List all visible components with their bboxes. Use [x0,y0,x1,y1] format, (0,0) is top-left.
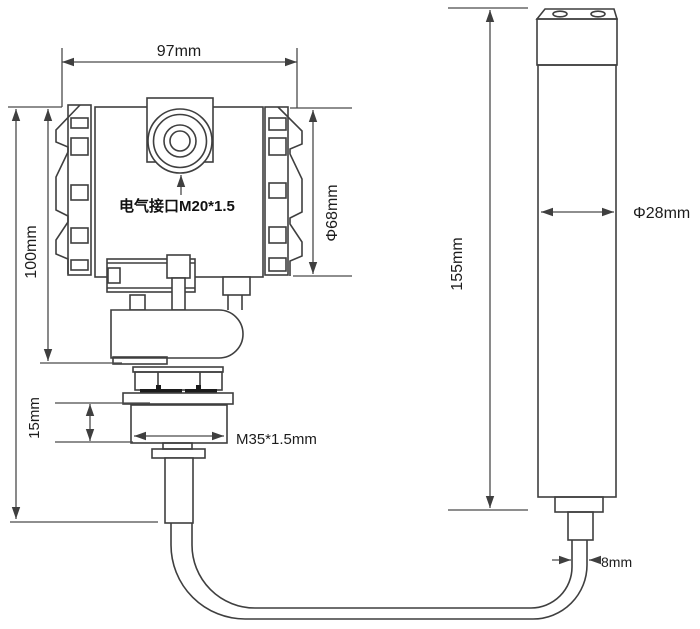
housing-height-label: 100mm [23,225,40,278]
probe-cap [537,19,617,65]
probe-neck [568,512,593,540]
probe-body [538,65,616,497]
electrical-port-callout: 电气接口M20*1.5 [119,175,235,215]
vent-hole-right [591,11,605,17]
housing-diameter-label: Φ68mm [324,184,341,241]
mounting-bracket [107,255,250,310]
thread-height-label: 15mm [26,397,43,439]
process-flange [111,310,243,364]
left-clamp [56,105,91,275]
electrical-port [147,98,213,173]
dimension-cable-diameter: 8mm [552,554,632,570]
probe-collar [555,497,603,512]
electrical-port-label: 电气接口M20*1.5 [119,197,235,215]
probe-length-label: 155mm [449,237,466,290]
right-clamp [265,107,302,276]
vent-hole-left [553,11,567,17]
technical-drawing: 97mm 100mm Φ68mm 电气接口M20*1.5 15mm M35*1.… [0,0,700,629]
dimension-probe-length: 155mm [448,8,528,510]
cable [171,523,587,619]
thread-connection [123,367,233,523]
transmitter-housing [56,98,302,523]
probe [537,9,617,540]
housing-width-label: 97mm [157,43,201,60]
probe-diameter-label: Φ28mm [633,205,690,222]
thread-spec-label: M35*1.5mm [236,431,317,448]
cable-diameter-label: 8mm [601,554,632,570]
